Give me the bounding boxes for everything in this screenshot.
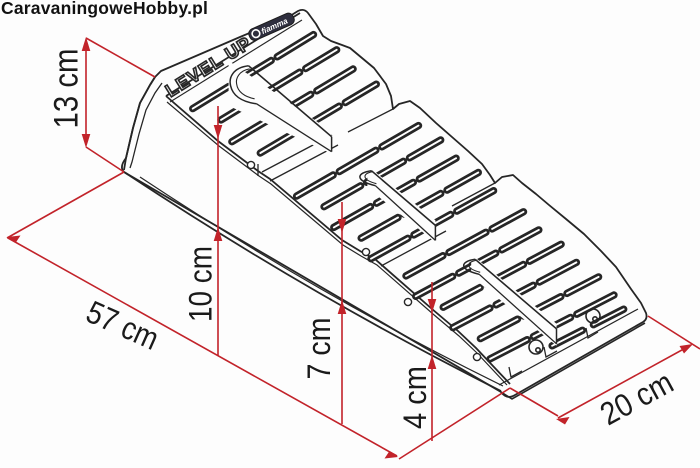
svg-text:4 cm: 4 cm bbox=[397, 366, 433, 429]
svg-text:7 cm: 7 cm bbox=[301, 318, 337, 380]
svg-text:13 cm: 13 cm bbox=[48, 49, 86, 129]
svg-text:10 cm: 10 cm bbox=[183, 246, 219, 322]
svg-text:CaravaningoweHobby.pl: CaravaningoweHobby.pl bbox=[1, 0, 208, 18]
